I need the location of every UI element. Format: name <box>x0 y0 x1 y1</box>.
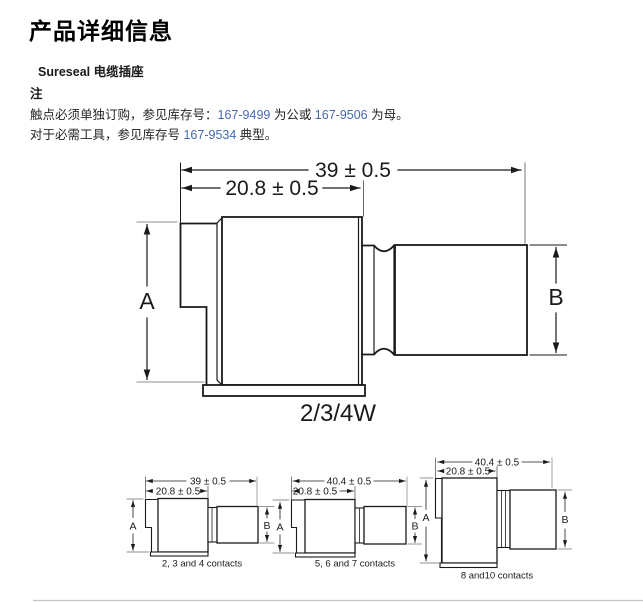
caption: 2, 3 and 4 contacts <box>162 559 243 570</box>
dim-inner: 20.8 ± 0.5 <box>293 487 338 498</box>
main-dim-inner: 20.8 ± 0.5 <box>225 177 318 200</box>
dim-inner: 20.8 ± 0.5 <box>156 487 201 498</box>
label-b: B <box>411 521 418 533</box>
caption: 8 and10 contacts <box>461 571 534 582</box>
main-label-b: B <box>548 284 563 310</box>
dim-inner: 20.8 ± 0.5 <box>446 467 491 478</box>
label-a: A <box>276 522 283 534</box>
main-diagram: 39 ± 0.5 20.8 ± 0.5 A B 2/3/4W <box>137 159 567 427</box>
main-dim-overall: 39 ± 0.5 <box>315 159 391 182</box>
main-label-a: A <box>139 288 155 314</box>
outline <box>292 500 407 558</box>
label-a: A <box>129 521 136 533</box>
small-diagram-3: 40.4 ± 0.5 20.8 ± 0.5 A B 8 and10 contac… <box>420 458 572 582</box>
outline <box>436 478 557 568</box>
label-b: B <box>561 514 568 526</box>
technical-drawing-canvas: 39 ± 0.5 20.8 ± 0.5 A B 2/3/4W <box>0 0 643 603</box>
outline <box>146 499 259 557</box>
connector-body-outline <box>181 217 528 396</box>
small-diagram-2: 40.4 ± 0.5 20.8 ± 0.5 A B 5, 6 and 7 con… <box>273 477 422 570</box>
caption: 5, 6 and 7 contacts <box>315 559 396 570</box>
label-b: B <box>263 520 270 532</box>
main-caption: 2/3/4W <box>300 400 376 427</box>
label-a: A <box>422 512 429 524</box>
small-diagram-1: 39 ± 0.5 20.8 ± 0.5 A B 2, 3 and 4 conta… <box>127 477 274 570</box>
